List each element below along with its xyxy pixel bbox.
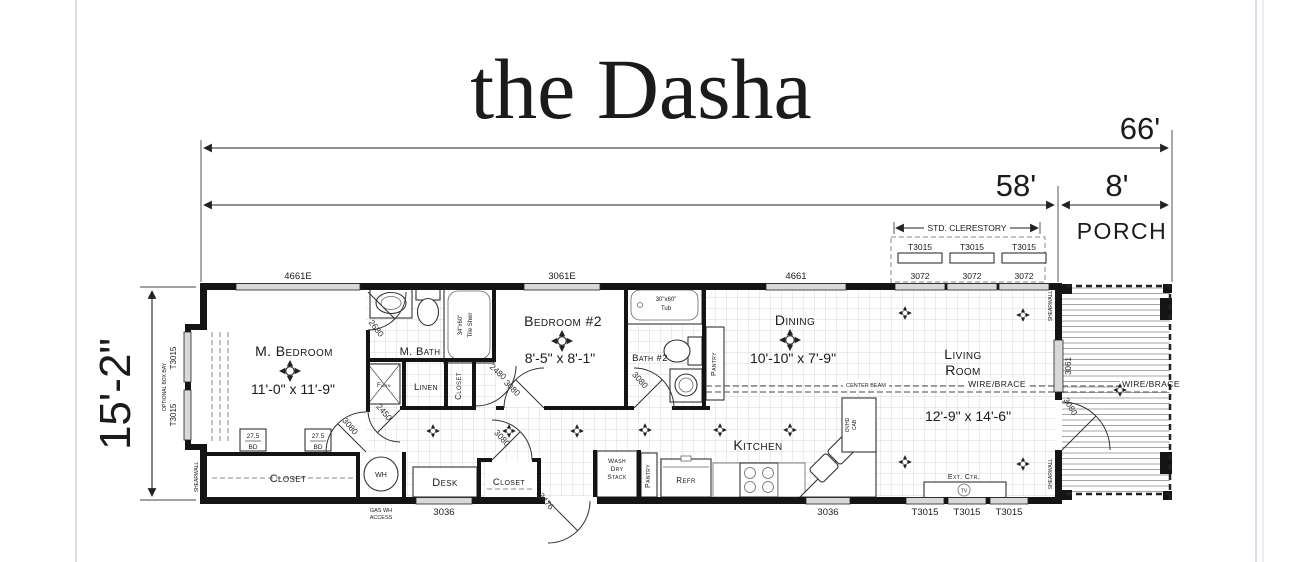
pantry-label: Pantry (711, 352, 718, 376)
shower-size-label: 34"x60" (458, 315, 464, 336)
wh-access-note2: ACCESS (370, 515, 393, 521)
window-3072 (947, 284, 997, 291)
toilet-icon (418, 299, 439, 326)
center-beam-label: CENTER BEAM (846, 383, 886, 389)
window-label: 3061E (548, 271, 575, 282)
window-3036-left (416, 498, 472, 505)
window-label: 4661 (785, 271, 806, 282)
bay-window-t3015 (184, 332, 191, 382)
stack-label: Stack (607, 474, 627, 481)
clerestory-window-label: T3015 (908, 242, 932, 252)
window-t3015 (948, 498, 986, 505)
shearwall-note: SHEARWALL (1048, 291, 1054, 322)
window-3072-label: 3072 (963, 271, 982, 281)
window-label: T3015 (954, 507, 981, 518)
bed-board-size: 27.5 (247, 433, 260, 440)
room-label-m-closet: Closet (270, 473, 307, 485)
pantry2-label: Pantry (645, 464, 652, 488)
bed-board-label: BD (313, 444, 322, 451)
refrigerator-label: Refr (676, 476, 696, 485)
shearwall-note: SHEARWALL (1048, 459, 1054, 490)
bed-board-label: BD (248, 444, 257, 451)
window-3072-label: 3072 (1015, 271, 1034, 281)
window-3072 (999, 284, 1049, 291)
tub-size-label: 30"x60" (656, 297, 677, 303)
washer-label: Wash (608, 458, 626, 465)
range-icon (740, 463, 778, 497)
furnace-label: Furn (377, 383, 391, 389)
window-label: 3036 (433, 507, 454, 518)
window-3072-label: 3072 (911, 271, 930, 281)
desk: Desk (413, 467, 477, 497)
room-label-m-bath: M. Bath (400, 346, 441, 358)
window-label: T3015 (912, 507, 939, 518)
window-label: T3015 (996, 507, 1023, 518)
dryer-label: Dry (611, 466, 624, 473)
room-label-kitchen: Kitchen (733, 437, 782, 453)
dim-body-length: 58' (996, 168, 1036, 203)
bed-board-size: 27.5 (312, 433, 325, 440)
counter (778, 463, 805, 497)
room-size-dining: 10'-10" x 7'-9" (750, 350, 836, 366)
ext-ctr-label: Ext. Ctr. (948, 474, 980, 481)
room-label-dining: Dining (775, 312, 815, 328)
overhead-cabinet-label: OVHD (845, 417, 851, 432)
clerestory-window-label: T3015 (960, 242, 984, 252)
room-label-b2-closet: Closet (454, 372, 463, 400)
bay-window-label: T3015 (169, 403, 178, 426)
window-4661e (236, 284, 360, 291)
window-t3015 (990, 498, 1028, 505)
room-size-living: 12'-9" x 14'-6" (925, 408, 1011, 424)
overhead-cabinet-label2: CAB (852, 419, 858, 430)
room-size-bedroom2: 8'-5" x 8'-1" (525, 350, 596, 366)
room-label-bath2: Bath #2 (632, 353, 668, 364)
tub-label: Tub (661, 306, 672, 312)
clerestory-windows: T3015 T3015 T3015 3072 3072 3072 (891, 237, 1046, 282)
porch-title: PORCH (1077, 218, 1168, 244)
wire-brace-label: WIRE/BRACE (968, 379, 1026, 389)
window-3061-side (1054, 340, 1063, 392)
side-window-label: 3061 (1064, 357, 1073, 375)
dim-width: 15'-2" (91, 338, 140, 450)
bay-window-label: T3015 (169, 346, 178, 369)
room-label-bedroom2: Bedroom #2 (524, 313, 602, 329)
room-size-m-bedroom: 11'-0" x 11'-9" (251, 381, 335, 397)
shearwall-note: SHEARWALL (194, 462, 200, 493)
bay-window-t3015 (184, 390, 191, 440)
floor-plan-canvas: the Dasha 66' 58' 8' PORCH 15'-2" STD. C… (0, 0, 1290, 562)
room-label-living: Living (944, 346, 981, 362)
window-label: 4661E (284, 271, 311, 282)
window-3036-right (806, 498, 850, 505)
dim-porch-length: 8' (1105, 168, 1128, 203)
wh-access-note: GAS WH (370, 508, 392, 514)
room-label-rear-closet: Closet (493, 477, 526, 488)
desk-label: Desk (432, 477, 458, 489)
tv-label: TV (961, 489, 968, 495)
window-4661 (766, 284, 846, 291)
clerestory-window-label: T3015 (1012, 242, 1036, 252)
room-label-linen: Linen (414, 382, 438, 393)
room-label-living2: Room (945, 362, 981, 378)
water-heater-label: WH (375, 472, 387, 479)
dim-overall-length: 66' (1120, 111, 1160, 146)
shower-type-label: Tile Shwr (468, 313, 474, 338)
room-label-m-bedroom: M. Bedroom (255, 343, 333, 359)
window-t3015 (906, 498, 944, 505)
furnace: Furn (368, 364, 400, 404)
window-3061e (524, 284, 600, 291)
plan-title: the Dasha (470, 41, 811, 137)
window-3072 (895, 284, 945, 291)
counter (713, 463, 740, 497)
clerestory-note: STD. CLERESTORY (927, 223, 1006, 233)
bay-option-note: OPTIONAL BOX BAY (162, 362, 168, 411)
floor-plan-page: the Dasha 66' 58' 8' PORCH 15'-2" STD. C… (0, 0, 1290, 562)
window-label: 3036 (817, 507, 838, 518)
